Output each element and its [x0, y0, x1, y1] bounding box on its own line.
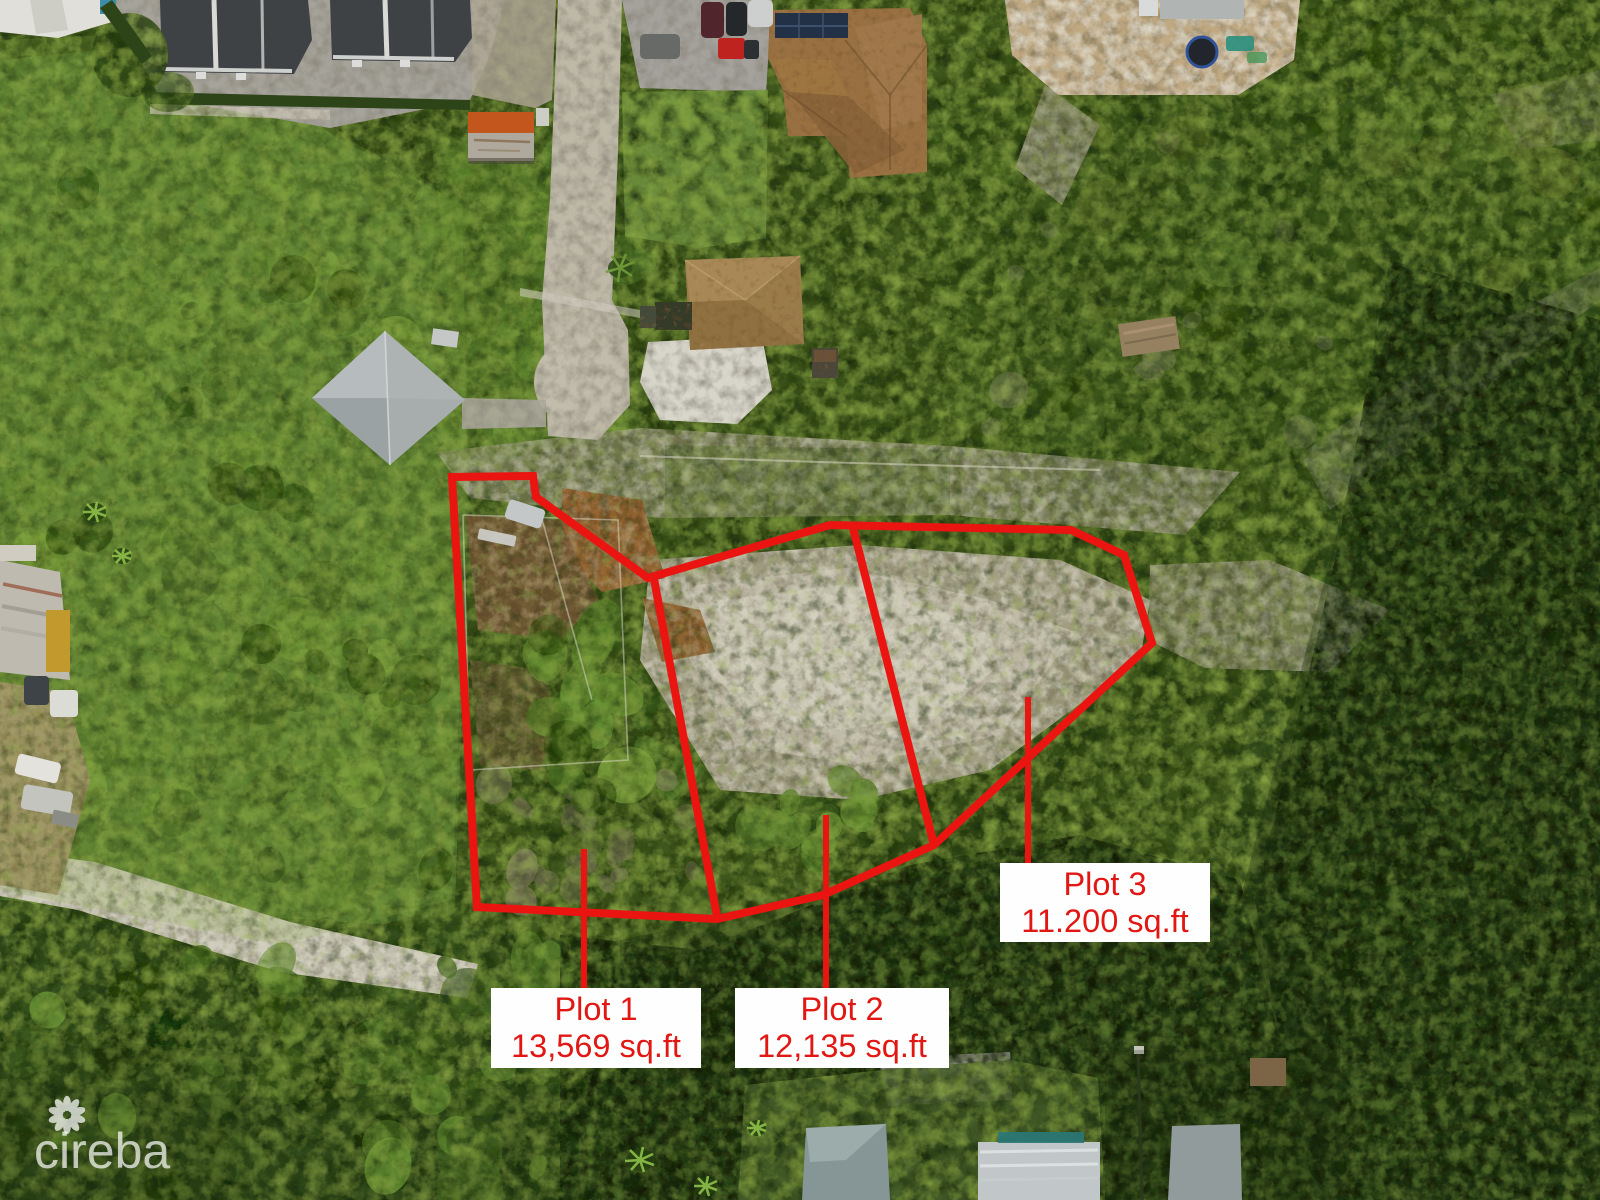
svg-text:12,135 sq.ft: 12,135 sq.ft [757, 1028, 927, 1064]
svg-text:cireba: cireba [34, 1123, 170, 1179]
svg-text:Plot 1: Plot 1 [554, 991, 637, 1027]
svg-text:Plot 2: Plot 2 [800, 991, 883, 1027]
svg-text:11.200 sq.ft: 11.200 sq.ft [1021, 903, 1188, 939]
svg-text:13,569 sq.ft: 13,569 sq.ft [511, 1028, 681, 1064]
svg-text:Plot 3: Plot 3 [1063, 866, 1146, 902]
